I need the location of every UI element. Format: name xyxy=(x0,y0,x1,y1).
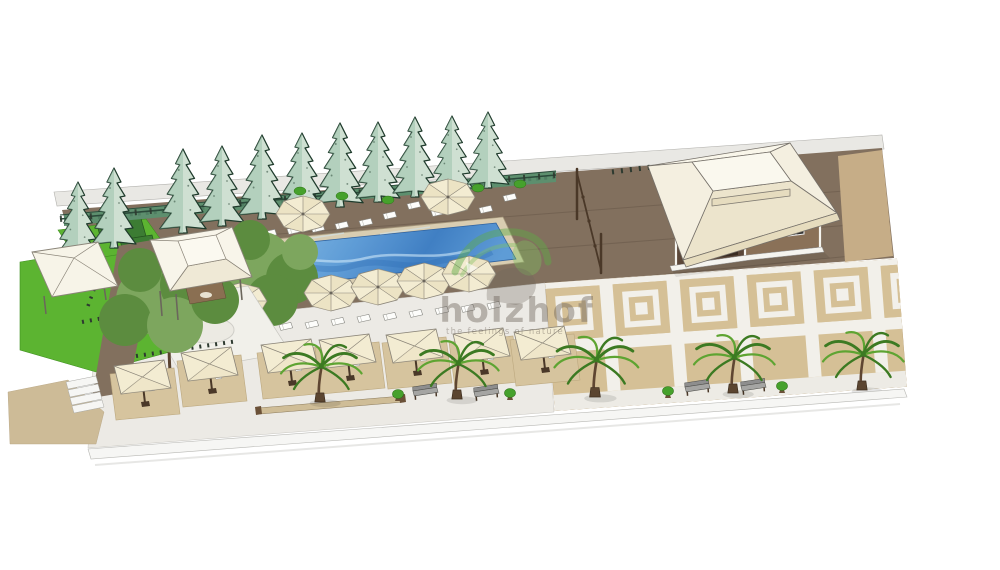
paving-motif-square xyxy=(680,276,736,332)
paving-motif-square xyxy=(881,262,937,318)
watermark-tagline: the feelings of nature xyxy=(446,327,564,337)
paving-motif-square xyxy=(747,271,803,327)
pool-umbrella-round xyxy=(421,179,475,215)
paving-motif-square xyxy=(613,281,669,337)
pool-umbrella-round xyxy=(304,275,358,311)
pool-umbrella-round xyxy=(276,196,330,232)
paving-motif-square xyxy=(814,267,870,323)
conifer-tree xyxy=(467,112,509,188)
render-canvas: holzhof the feelings of nature xyxy=(0,0,1000,570)
watermark-brand: holzhof xyxy=(439,291,594,331)
pool-umbrella-round xyxy=(351,269,405,305)
conifer-tree xyxy=(356,122,400,202)
plaza-corner-paving xyxy=(838,150,893,262)
site-plan-rendering: holzhof the feelings of nature xyxy=(0,0,1000,570)
